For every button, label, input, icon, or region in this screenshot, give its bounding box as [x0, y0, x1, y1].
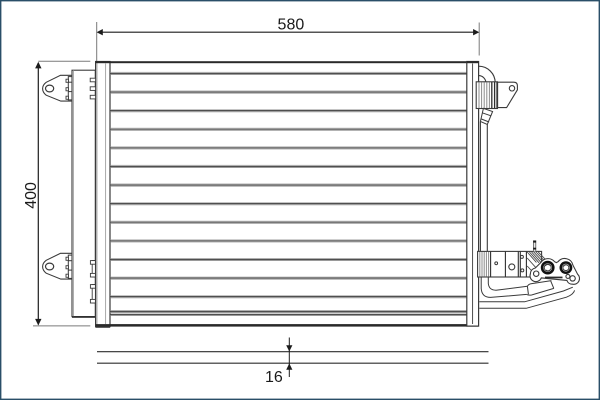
svg-text:16: 16 — [265, 369, 283, 386]
svg-text:580: 580 — [278, 16, 305, 33]
svg-text:400: 400 — [23, 182, 40, 209]
